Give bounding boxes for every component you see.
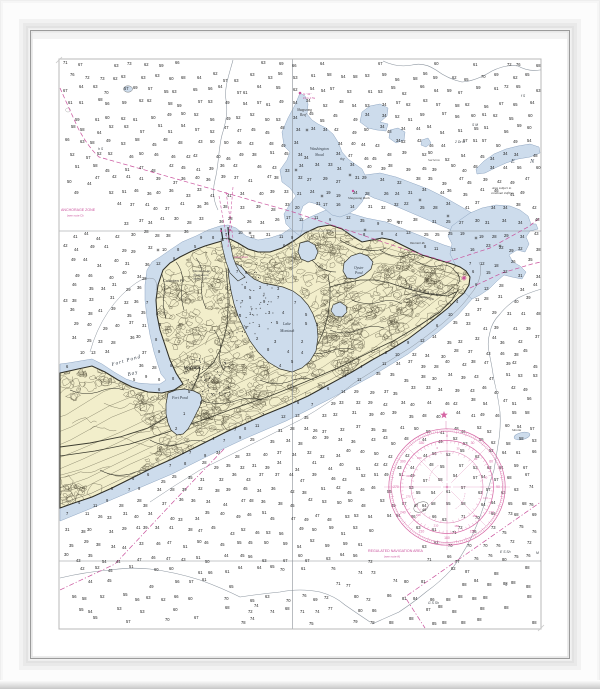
svg-text:33: 33 xyxy=(465,312,470,317)
svg-text:37: 37 xyxy=(130,202,135,207)
svg-text:62: 62 xyxy=(121,116,126,121)
svg-text:62: 62 xyxy=(402,91,407,96)
svg-text:81: 81 xyxy=(402,596,407,601)
svg-text:29: 29 xyxy=(214,465,219,470)
svg-text:46: 46 xyxy=(171,154,176,159)
svg-text:38: 38 xyxy=(382,428,387,433)
svg-text:68: 68 xyxy=(225,605,230,610)
svg-text:45: 45 xyxy=(284,151,289,156)
svg-text:66: 66 xyxy=(208,570,213,575)
svg-text:59: 59 xyxy=(343,541,348,546)
svg-text:14: 14 xyxy=(432,334,437,339)
svg-text:72: 72 xyxy=(85,75,90,80)
svg-text:39: 39 xyxy=(143,525,148,530)
svg-text:56: 56 xyxy=(484,104,489,109)
svg-text:45: 45 xyxy=(333,113,338,118)
svg-text:51: 51 xyxy=(341,531,346,536)
svg-text:13: 13 xyxy=(451,247,456,252)
svg-text:15: 15 xyxy=(486,270,491,275)
svg-text:60: 60 xyxy=(169,566,174,571)
svg-text:25: 25 xyxy=(172,474,177,479)
svg-text:Lake Mont: Lake Mont xyxy=(234,255,248,259)
svg-text:34: 34 xyxy=(240,191,245,196)
svg-text:49: 49 xyxy=(225,100,230,105)
svg-text:49: 49 xyxy=(352,130,357,135)
svg-text:64: 64 xyxy=(530,100,535,105)
svg-text:30: 30 xyxy=(456,447,460,451)
svg-text:12: 12 xyxy=(156,261,161,266)
svg-text:74: 74 xyxy=(393,578,398,583)
svg-text:33: 33 xyxy=(285,202,290,207)
svg-text:49: 49 xyxy=(226,116,231,121)
svg-text:60: 60 xyxy=(434,61,439,66)
svg-text:54: 54 xyxy=(321,88,326,93)
svg-text:33: 33 xyxy=(246,452,251,457)
svg-text:55: 55 xyxy=(79,607,84,612)
svg-text:30: 30 xyxy=(475,218,480,223)
svg-text:G S Sh: G S Sh xyxy=(428,601,439,605)
svg-text:62: 62 xyxy=(406,102,411,107)
svg-text:67: 67 xyxy=(283,558,288,563)
svg-text:40: 40 xyxy=(380,411,385,416)
svg-text:69: 69 xyxy=(279,61,284,66)
svg-text:51: 51 xyxy=(75,164,80,169)
svg-text:42: 42 xyxy=(193,153,198,158)
svg-text:67: 67 xyxy=(78,62,83,67)
svg-text:M: M xyxy=(536,551,539,555)
svg-text:12: 12 xyxy=(480,261,485,266)
svg-text:68: 68 xyxy=(181,75,186,80)
svg-text:33: 33 xyxy=(89,297,94,302)
svg-text:64: 64 xyxy=(197,75,202,80)
svg-text:60: 60 xyxy=(188,596,193,601)
svg-text:61: 61 xyxy=(368,89,373,94)
svg-text:46: 46 xyxy=(154,152,159,157)
svg-text:42: 42 xyxy=(63,243,68,248)
svg-text:48: 48 xyxy=(249,498,254,503)
svg-text:51: 51 xyxy=(321,486,326,491)
svg-text:32: 32 xyxy=(340,427,345,432)
svg-text:88: 88 xyxy=(409,616,414,621)
svg-text:31: 31 xyxy=(125,261,130,266)
svg-text:45: 45 xyxy=(108,568,113,573)
svg-text:49: 49 xyxy=(353,117,358,122)
svg-text:29: 29 xyxy=(122,248,127,253)
svg-text:42: 42 xyxy=(383,402,388,407)
svg-text:Area subject to: Area subject to xyxy=(491,186,512,190)
svg-text:40: 40 xyxy=(360,449,365,454)
svg-text:62: 62 xyxy=(161,597,166,602)
svg-text:34: 34 xyxy=(148,511,153,516)
svg-text:59: 59 xyxy=(514,463,519,468)
svg-text:35: 35 xyxy=(447,340,452,345)
svg-text:51: 51 xyxy=(125,167,130,172)
svg-text:52: 52 xyxy=(109,190,114,195)
svg-text:57: 57 xyxy=(461,485,466,490)
svg-text:37: 37 xyxy=(408,359,413,364)
svg-text:41: 41 xyxy=(98,308,103,313)
svg-text:37: 37 xyxy=(535,334,540,339)
svg-text:39: 39 xyxy=(256,204,261,209)
svg-text:50: 50 xyxy=(210,139,215,144)
svg-text:50: 50 xyxy=(496,143,501,148)
svg-text:34: 34 xyxy=(105,349,110,354)
svg-text:31: 31 xyxy=(507,311,512,316)
svg-text:43: 43 xyxy=(342,477,347,482)
svg-text:45: 45 xyxy=(480,154,485,159)
svg-text:49: 49 xyxy=(71,257,76,262)
svg-text:270: 270 xyxy=(393,485,399,489)
svg-text:56: 56 xyxy=(208,86,213,91)
svg-text:54: 54 xyxy=(88,609,93,614)
svg-text:67: 67 xyxy=(63,88,68,93)
svg-text:52: 52 xyxy=(241,527,246,532)
svg-text:51: 51 xyxy=(458,128,463,133)
svg-text:29: 29 xyxy=(509,248,514,253)
svg-text:30: 30 xyxy=(131,232,136,237)
svg-text:35: 35 xyxy=(127,313,132,318)
svg-text:48: 48 xyxy=(163,137,168,142)
svg-text:20: 20 xyxy=(295,205,300,210)
svg-text:rky: rky xyxy=(340,157,345,161)
svg-text:39: 39 xyxy=(324,435,329,440)
svg-text:47: 47 xyxy=(241,498,246,503)
svg-text:17: 17 xyxy=(323,202,328,207)
svg-text:76: 76 xyxy=(516,62,521,67)
svg-text:42: 42 xyxy=(334,127,339,132)
svg-text:45: 45 xyxy=(290,503,295,508)
svg-text:50: 50 xyxy=(414,426,419,431)
svg-text:46: 46 xyxy=(88,273,93,278)
svg-text:34: 34 xyxy=(520,287,525,292)
svg-text:13: 13 xyxy=(295,413,300,418)
svg-text:38: 38 xyxy=(252,152,257,157)
svg-text:63: 63 xyxy=(141,75,146,80)
svg-text:74: 74 xyxy=(529,484,534,489)
svg-text:88: 88 xyxy=(494,571,499,576)
svg-text:46: 46 xyxy=(429,143,434,148)
svg-text:58: 58 xyxy=(525,410,530,415)
svg-text:70: 70 xyxy=(286,598,291,603)
svg-text:49: 49 xyxy=(279,99,284,104)
svg-text:40: 40 xyxy=(87,322,92,327)
svg-text:47: 47 xyxy=(315,513,320,518)
svg-text:0: 0 xyxy=(446,434,448,438)
svg-text:74: 74 xyxy=(250,616,255,621)
svg-text:46: 46 xyxy=(371,485,376,490)
svg-text:38: 38 xyxy=(516,202,521,207)
svg-text:39: 39 xyxy=(526,326,531,331)
svg-text:54: 54 xyxy=(483,401,488,406)
svg-text:58: 58 xyxy=(353,74,358,79)
svg-text:64: 64 xyxy=(218,84,223,89)
svg-text:Pond: Pond xyxy=(354,271,363,275)
svg-text:36: 36 xyxy=(137,285,142,290)
svg-text:47: 47 xyxy=(503,398,508,403)
svg-text:48: 48 xyxy=(269,141,274,146)
svg-text:34: 34 xyxy=(299,163,304,168)
svg-text:40: 40 xyxy=(351,141,356,146)
svg-text:54: 54 xyxy=(368,514,373,519)
svg-text:58: 58 xyxy=(71,124,76,129)
svg-text:55: 55 xyxy=(237,540,242,545)
svg-text:88: 88 xyxy=(487,582,492,587)
svg-text:31: 31 xyxy=(518,273,523,278)
svg-text:63: 63 xyxy=(124,124,129,129)
svg-text:44: 44 xyxy=(416,126,421,131)
svg-text:13: 13 xyxy=(484,286,489,291)
svg-text:39: 39 xyxy=(312,472,317,477)
svg-text:46: 46 xyxy=(364,156,369,161)
svg-text:66: 66 xyxy=(532,449,537,454)
svg-text:45: 45 xyxy=(243,486,248,491)
svg-text:76: 76 xyxy=(331,566,336,571)
svg-text:(see note A): (see note A) xyxy=(384,555,400,559)
svg-text:29: 29 xyxy=(370,390,375,395)
svg-text:57: 57 xyxy=(330,86,335,91)
svg-text:Sachems: Sachems xyxy=(428,158,441,162)
svg-text:37: 37 xyxy=(142,350,147,355)
svg-text:61: 61 xyxy=(266,102,271,107)
svg-text:57: 57 xyxy=(198,99,203,104)
svg-text:49: 49 xyxy=(520,190,525,195)
svg-text:36: 36 xyxy=(147,191,152,196)
svg-text:25: 25 xyxy=(446,219,451,224)
svg-text:13: 13 xyxy=(91,350,96,355)
svg-text:34: 34 xyxy=(503,205,508,210)
svg-text:28: 28 xyxy=(119,503,124,508)
svg-text:72: 72 xyxy=(504,84,509,89)
svg-text:10: 10 xyxy=(395,352,400,357)
svg-text:44: 44 xyxy=(96,236,101,241)
svg-text:(see note D): (see note D) xyxy=(67,214,84,218)
svg-text:67: 67 xyxy=(523,465,528,470)
svg-text:47: 47 xyxy=(291,516,296,521)
svg-text:46: 46 xyxy=(204,540,209,545)
svg-text:53: 53 xyxy=(518,373,523,378)
svg-text:47: 47 xyxy=(525,176,530,181)
svg-text:300: 300 xyxy=(406,474,411,478)
svg-text:40: 40 xyxy=(115,323,120,328)
svg-text:57: 57 xyxy=(148,86,153,91)
svg-text:ANCHORAGE ZONE: ANCHORAGE ZONE xyxy=(61,208,96,212)
svg-text:63: 63 xyxy=(172,89,177,94)
svg-text:52: 52 xyxy=(445,157,450,162)
svg-text:53: 53 xyxy=(117,606,122,611)
svg-text:52: 52 xyxy=(95,565,100,570)
svg-text:46: 46 xyxy=(156,541,161,546)
svg-text:59: 59 xyxy=(433,75,438,80)
svg-text:74: 74 xyxy=(358,570,363,575)
svg-text:66: 66 xyxy=(175,60,180,65)
svg-text:34: 34 xyxy=(338,141,343,146)
svg-text:56: 56 xyxy=(423,71,428,76)
svg-text:52: 52 xyxy=(361,473,366,478)
svg-text:34: 34 xyxy=(148,220,153,225)
svg-text:48: 48 xyxy=(178,140,183,145)
svg-text:70: 70 xyxy=(467,543,472,548)
svg-text:88: 88 xyxy=(446,597,451,602)
svg-text:32: 32 xyxy=(320,454,325,459)
svg-text:39: 39 xyxy=(442,181,447,186)
svg-text:41: 41 xyxy=(210,193,215,198)
svg-text:25: 25 xyxy=(424,232,429,237)
svg-text:49: 49 xyxy=(384,472,389,477)
svg-text:43: 43 xyxy=(272,165,277,170)
svg-text:28: 28 xyxy=(228,216,233,221)
svg-text:40: 40 xyxy=(156,190,161,195)
svg-text:120: 120 xyxy=(483,496,488,500)
svg-text:29: 29 xyxy=(131,249,136,254)
svg-text:38: 38 xyxy=(215,488,220,493)
svg-text:34: 34 xyxy=(336,453,341,458)
svg-text:73: 73 xyxy=(491,525,496,530)
svg-text:42: 42 xyxy=(518,339,523,344)
svg-text:Monita: Monita xyxy=(511,428,522,432)
svg-text:S M: S M xyxy=(472,123,478,127)
svg-text:38: 38 xyxy=(298,441,303,446)
svg-text:88: 88 xyxy=(527,594,532,599)
svg-text:40: 40 xyxy=(259,191,264,196)
svg-text:25: 25 xyxy=(87,338,92,343)
svg-text:35: 35 xyxy=(409,414,414,419)
svg-text:25: 25 xyxy=(448,231,453,236)
svg-text:330: 330 xyxy=(419,441,425,445)
svg-text:11: 11 xyxy=(255,423,260,428)
svg-text:32: 32 xyxy=(397,180,402,185)
svg-text:36: 36 xyxy=(232,472,237,477)
svg-text:38: 38 xyxy=(514,352,519,357)
svg-text:69: 69 xyxy=(494,72,499,77)
svg-text:27: 27 xyxy=(398,220,403,225)
svg-text:43: 43 xyxy=(397,465,402,470)
svg-text:31: 31 xyxy=(432,219,437,224)
svg-text:29: 29 xyxy=(103,326,108,331)
svg-text:65: 65 xyxy=(464,77,469,82)
svg-text:54: 54 xyxy=(181,123,186,128)
svg-text:32: 32 xyxy=(333,412,338,417)
svg-text:37: 37 xyxy=(162,501,167,506)
svg-text:61: 61 xyxy=(243,90,248,95)
svg-text:58: 58 xyxy=(413,76,418,81)
svg-text:42: 42 xyxy=(388,454,393,459)
svg-text:64: 64 xyxy=(491,500,496,505)
svg-text:14: 14 xyxy=(341,389,346,394)
svg-text:64: 64 xyxy=(257,84,262,89)
svg-text:31: 31 xyxy=(278,428,283,433)
svg-text:57: 57 xyxy=(189,579,194,584)
svg-text:12: 12 xyxy=(299,217,304,222)
svg-text:46: 46 xyxy=(226,156,231,161)
svg-text:36: 36 xyxy=(206,177,211,182)
svg-text:continual shifting: continual shifting xyxy=(491,191,514,195)
svg-text:33: 33 xyxy=(426,385,431,390)
svg-text:50: 50 xyxy=(451,163,456,168)
svg-text:34: 34 xyxy=(157,487,162,492)
svg-text:240: 240 xyxy=(416,513,421,517)
svg-text:48: 48 xyxy=(387,129,392,134)
svg-text:73: 73 xyxy=(371,570,376,575)
svg-text:48: 48 xyxy=(422,413,427,418)
svg-text:71: 71 xyxy=(63,60,68,65)
svg-text:37: 37 xyxy=(477,307,482,312)
svg-text:88: 88 xyxy=(483,595,488,600)
svg-text:Fl G 2.5s: Fl G 2.5s xyxy=(303,96,316,100)
svg-text:41: 41 xyxy=(139,176,144,181)
svg-text:37: 37 xyxy=(139,218,144,223)
svg-text:Culloden Pt: Culloden Pt xyxy=(163,278,185,283)
svg-text:80: 80 xyxy=(502,557,507,562)
svg-text:44: 44 xyxy=(328,466,333,471)
svg-text:54: 54 xyxy=(310,86,315,91)
svg-text:34: 34 xyxy=(382,113,387,118)
svg-text:19: 19 xyxy=(326,190,331,195)
svg-text:86: 86 xyxy=(387,593,392,598)
svg-text:57: 57 xyxy=(530,426,535,431)
svg-text:57: 57 xyxy=(124,86,129,91)
svg-text:36: 36 xyxy=(70,307,75,312)
svg-text:58: 58 xyxy=(82,596,87,601)
svg-text:68: 68 xyxy=(514,512,519,517)
svg-text:40: 40 xyxy=(514,299,519,304)
svg-text:Montauk: Montauk xyxy=(184,365,202,370)
svg-text:52: 52 xyxy=(70,152,75,157)
svg-text:34: 34 xyxy=(448,372,453,377)
svg-text:11: 11 xyxy=(434,246,439,251)
svg-text:61: 61 xyxy=(358,542,363,547)
svg-text:45: 45 xyxy=(270,516,275,521)
svg-text:49: 49 xyxy=(422,508,426,512)
svg-text:36: 36 xyxy=(145,262,150,267)
svg-text:53: 53 xyxy=(380,498,385,503)
svg-text:41: 41 xyxy=(169,525,174,530)
svg-text:33: 33 xyxy=(284,189,289,194)
svg-text:54: 54 xyxy=(453,473,458,478)
svg-text:55: 55 xyxy=(460,448,465,453)
svg-text:60: 60 xyxy=(169,76,174,81)
svg-text:72: 72 xyxy=(527,540,532,545)
svg-text:70: 70 xyxy=(483,543,488,548)
svg-text:34: 34 xyxy=(277,460,282,465)
svg-text:34: 34 xyxy=(293,115,298,120)
svg-text:12: 12 xyxy=(346,215,351,220)
svg-text:49: 49 xyxy=(90,244,95,249)
svg-text:53: 53 xyxy=(121,141,126,146)
svg-text:42: 42 xyxy=(532,205,537,210)
svg-text:88: 88 xyxy=(452,609,457,614)
svg-text:2 Dr M: 2 Dr M xyxy=(454,140,465,144)
svg-text:54: 54 xyxy=(341,74,346,79)
svg-text:45: 45 xyxy=(523,348,528,353)
svg-text:68: 68 xyxy=(285,606,290,611)
svg-text:28: 28 xyxy=(484,296,489,301)
svg-text:45: 45 xyxy=(211,525,216,530)
svg-text:60: 60 xyxy=(471,113,476,118)
svg-text:34: 34 xyxy=(520,234,525,239)
svg-text:34: 34 xyxy=(97,263,102,268)
svg-text:58: 58 xyxy=(455,103,460,108)
svg-text:30: 30 xyxy=(64,552,69,557)
svg-text:34: 34 xyxy=(380,177,385,182)
svg-text:28: 28 xyxy=(492,234,497,239)
svg-text:60: 60 xyxy=(536,165,541,170)
svg-text:31: 31 xyxy=(355,175,360,180)
svg-text:47: 47 xyxy=(300,478,305,483)
svg-text:40: 40 xyxy=(153,206,158,211)
svg-text:10: 10 xyxy=(238,230,243,235)
svg-text:45: 45 xyxy=(422,166,427,171)
svg-text:54: 54 xyxy=(243,101,248,106)
